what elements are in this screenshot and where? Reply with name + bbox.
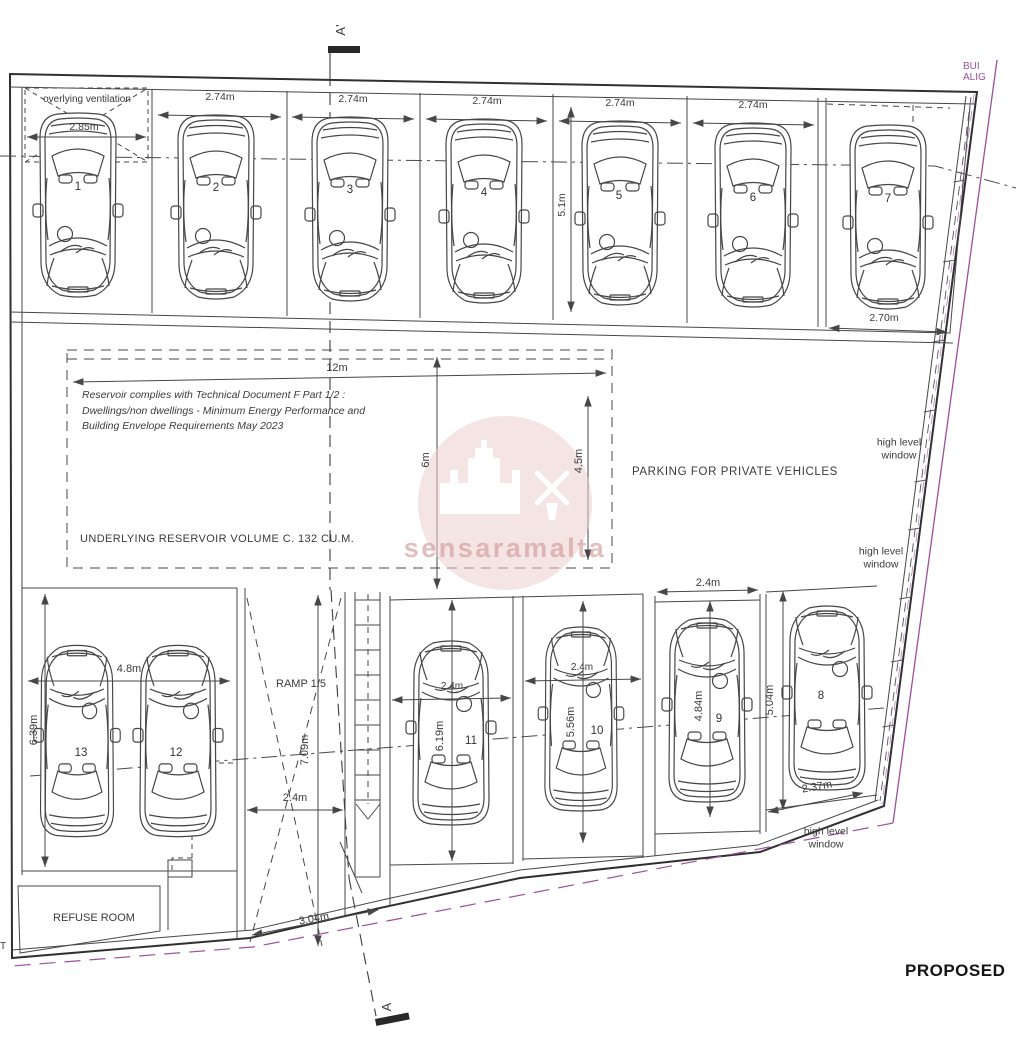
car-top-view-12 bbox=[133, 645, 223, 836]
dim-stall8-depth: 5.04m bbox=[764, 685, 776, 716]
car-top-view-8 bbox=[782, 606, 872, 790]
floor-plan-drawing: overlying ventilation 2.85m 2.74m 2.74m … bbox=[0, 0, 1016, 1046]
reservoir-volume-note: UNDERLYING RESERVOIR VOLUME C. 132 CU.M. bbox=[80, 533, 354, 545]
ramp-label: RAMP 1:5 bbox=[276, 678, 326, 690]
dim-stall11-depth: 6.19m bbox=[434, 721, 446, 752]
stall-number-5: 5 bbox=[616, 190, 622, 202]
car-top-view-5 bbox=[575, 121, 665, 305]
car-top-view-1 bbox=[33, 113, 123, 297]
dim-stall5-width: 2.74m bbox=[605, 97, 634, 109]
parking-area-label: PARKING FOR PRIVATE VEHICLES bbox=[632, 466, 838, 478]
stall-number-10: 10 bbox=[591, 725, 604, 737]
section-marker-bottom-bar bbox=[375, 1013, 410, 1026]
building-alignment-label-fragment: BUI ALIG bbox=[963, 61, 986, 83]
car-top-view-9 bbox=[662, 618, 752, 802]
watermark-text: sensaramalta bbox=[404, 542, 607, 554]
high-level-window-label-2: high level window bbox=[859, 546, 903, 571]
dim-reservoir-width: 12m bbox=[326, 362, 347, 374]
section-marker-top-bar bbox=[328, 46, 360, 53]
car-top-view-3 bbox=[305, 117, 395, 301]
dim-stall9-depth: 4.84m bbox=[693, 691, 705, 722]
plan-linework bbox=[0, 0, 1016, 1046]
dim-stall11-width: 2.4m bbox=[441, 681, 463, 693]
watermark bbox=[418, 416, 592, 590]
section-marker-top-label: A' bbox=[335, 24, 347, 35]
stall-number-4: 4 bbox=[481, 187, 487, 199]
section-marker-bottom-label: A bbox=[381, 1003, 393, 1012]
dim-stall13-depth: 6.39m bbox=[28, 715, 40, 746]
stall-number-7: 7 bbox=[885, 193, 891, 205]
car-top-view-2 bbox=[171, 115, 261, 299]
stall-number-12: 12 bbox=[170, 747, 183, 759]
high-level-window-label-3: high level window bbox=[804, 826, 848, 851]
car-top-view-13 bbox=[34, 645, 120, 836]
reservoir-note: Reservoir complies with Technical Docume… bbox=[82, 388, 365, 435]
stall-number-9: 9 bbox=[716, 713, 722, 725]
dim-stall1-width: 2.85m bbox=[69, 121, 98, 133]
dim-stall2-width: 2.74m bbox=[205, 91, 234, 103]
stall-number-8: 8 bbox=[818, 690, 824, 702]
stall-number-1: 1 bbox=[75, 181, 81, 193]
stall-number-11: 11 bbox=[465, 735, 477, 747]
dim-stall10-width: 2.4m bbox=[571, 662, 593, 674]
dim-stall5-depth: 5.1m bbox=[556, 193, 568, 216]
high-level-window-label-1: high level window bbox=[877, 437, 921, 462]
dim-stall10-depth: 5.56m bbox=[565, 707, 577, 738]
car-top-view-7 bbox=[843, 125, 933, 309]
dim-stall7-width: 2.70m bbox=[869, 312, 898, 324]
stall-number-3: 3 bbox=[347, 184, 353, 196]
dim-ramp-width: 2.4m bbox=[283, 792, 307, 804]
refuse-room-label: REFUSE ROOM bbox=[53, 912, 135, 924]
stall-number-6: 6 bbox=[750, 192, 756, 204]
stall-number-13: 13 bbox=[75, 747, 88, 759]
dim-stall4-width: 2.74m bbox=[472, 95, 501, 107]
dim-reservoir-depth: 6m bbox=[420, 452, 432, 467]
car-top-view-10 bbox=[538, 627, 624, 811]
dim-ramp-length: 7.09m bbox=[299, 735, 311, 766]
proposed-title: PROPOSED bbox=[905, 965, 1005, 977]
stall-number-2: 2 bbox=[213, 182, 219, 194]
car-top-view-4 bbox=[439, 119, 529, 303]
dim-stall9-width: 2.4m bbox=[696, 577, 720, 589]
dim-stall3-width: 2.74m bbox=[338, 93, 367, 105]
car-top-view-6 bbox=[708, 123, 798, 307]
dim-stall6-width: 2.74m bbox=[738, 99, 767, 111]
overlying-ventilation-label: overlying ventilation bbox=[43, 94, 131, 106]
street-label-fragment: T bbox=[0, 941, 6, 953]
car-top-view-11 bbox=[406, 641, 496, 825]
dim-double-stall-width: 4.8m bbox=[117, 663, 141, 675]
dim-reservoir-clear-depth: 4.5m bbox=[573, 449, 585, 473]
